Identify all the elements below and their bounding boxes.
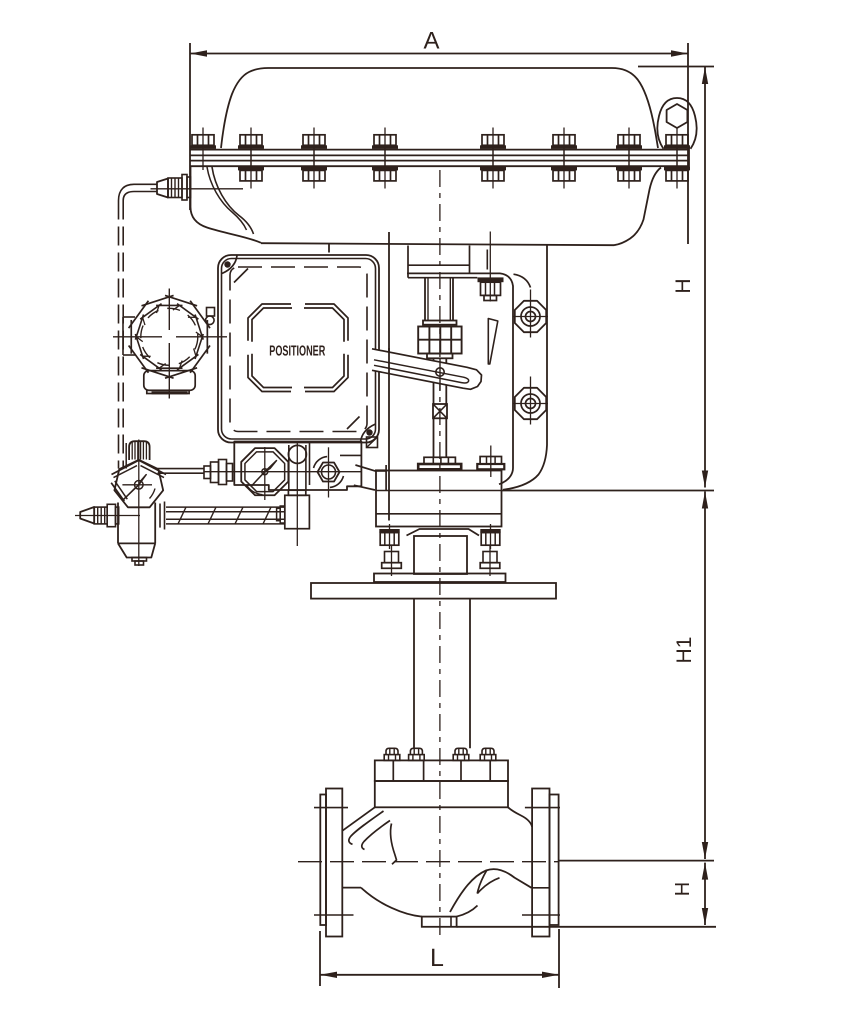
svg-text:H: H: [672, 278, 695, 293]
svg-text:H: H: [672, 882, 694, 896]
svg-text:A: A: [423, 27, 439, 54]
svg-text:POSITIONER: POSITIONER: [269, 343, 325, 359]
svg-text:L: L: [430, 944, 444, 972]
svg-text:H1: H1: [673, 637, 696, 664]
